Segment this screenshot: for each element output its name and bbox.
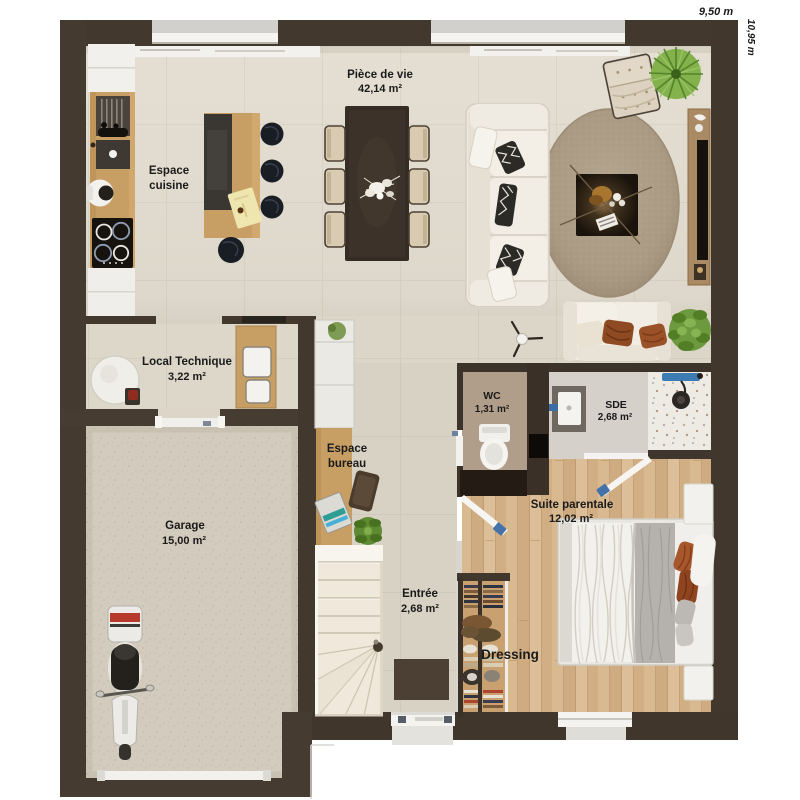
svg-text:12,02 m²: 12,02 m²: [549, 513, 593, 525]
svg-text:Dressing: Dressing: [481, 647, 539, 662]
svg-text:2,68 m²: 2,68 m²: [401, 603, 439, 615]
svg-text:bureau: bureau: [328, 458, 366, 470]
svg-text:3,22 m²: 3,22 m²: [168, 371, 206, 383]
svg-text:Garage: Garage: [165, 520, 205, 532]
svg-text:Pièce de vie: Pièce de vie: [347, 69, 413, 81]
svg-text:WC: WC: [483, 390, 501, 402]
svg-text:42,14 m²: 42,14 m²: [358, 83, 402, 95]
svg-text:15,00 m²: 15,00 m²: [162, 535, 206, 547]
svg-text:Espace: Espace: [327, 443, 367, 455]
svg-text:2,68 m²: 2,68 m²: [598, 412, 633, 423]
svg-text:SDE: SDE: [605, 399, 627, 411]
svg-text:Suite parentale: Suite parentale: [531, 499, 613, 511]
svg-text:Espace: Espace: [149, 165, 189, 177]
svg-text:10,95 m: 10,95 m: [745, 19, 756, 56]
svg-text:1,31 m²: 1,31 m²: [475, 404, 510, 415]
svg-text:cuisine: cuisine: [149, 180, 189, 192]
svg-text:Local Technique: Local Technique: [142, 356, 232, 368]
svg-text:9,50 m: 9,50 m: [699, 6, 733, 18]
svg-text:Entrée: Entrée: [402, 588, 438, 600]
